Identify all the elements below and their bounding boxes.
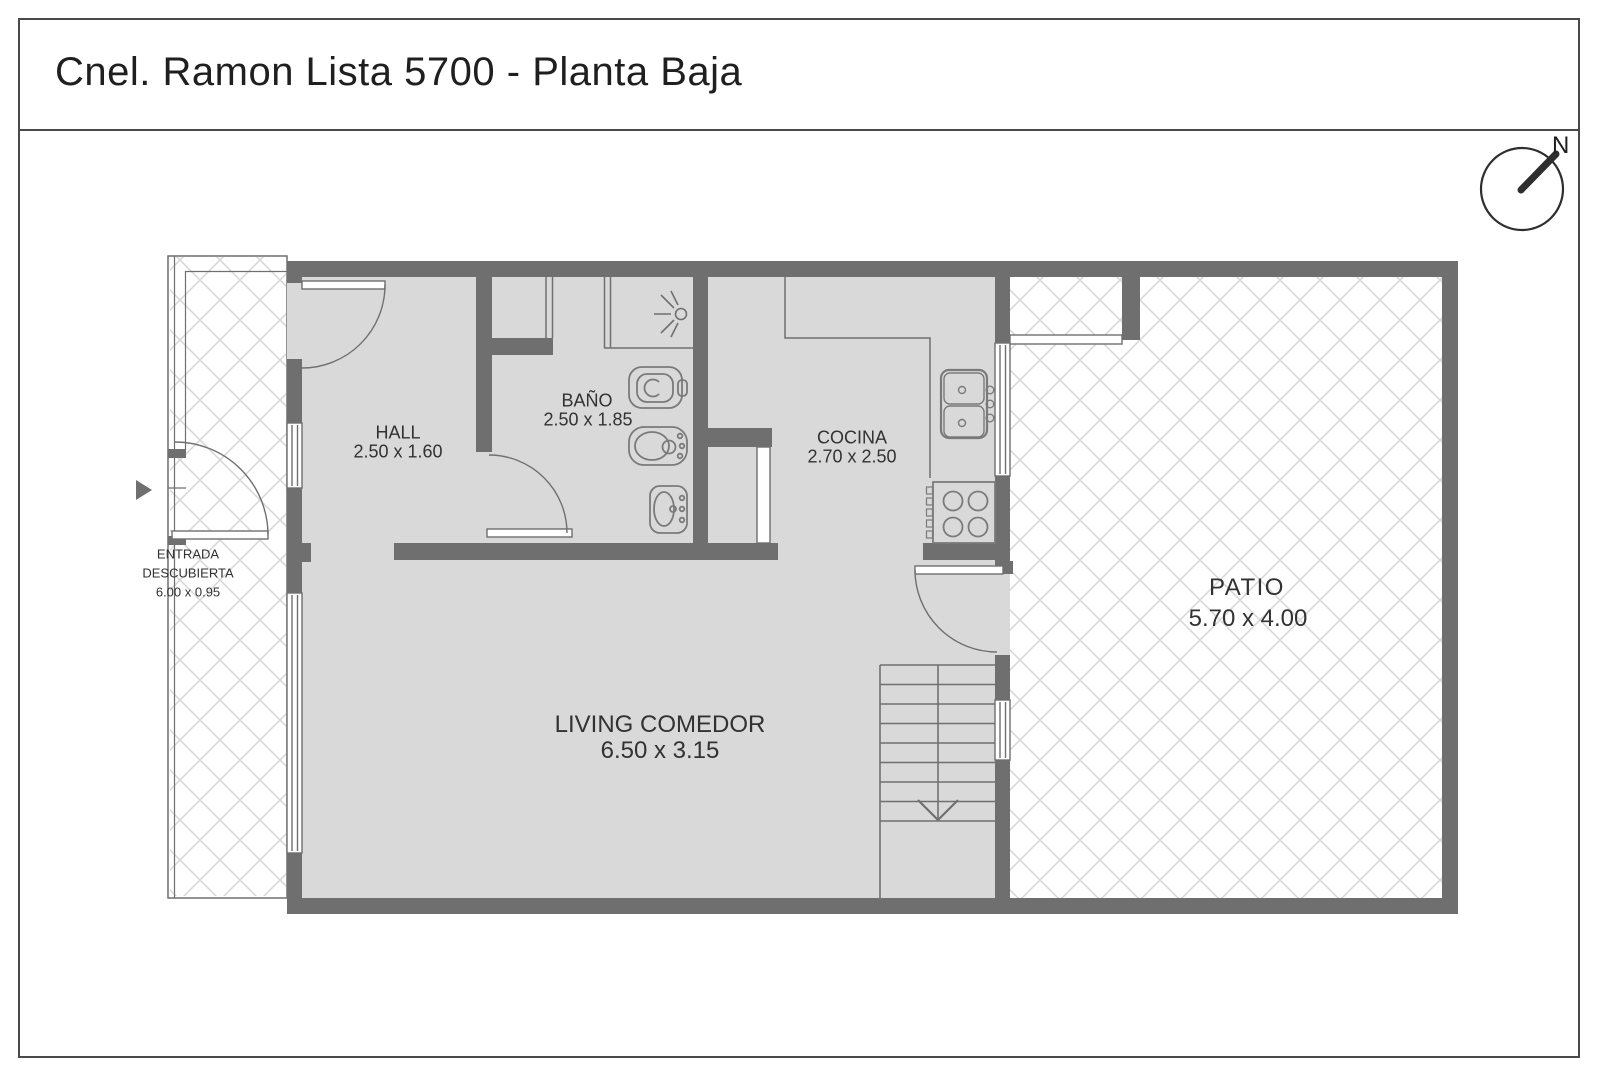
bathroom-label: BAÑO — [561, 391, 612, 412]
bathroom-dims: 2.50 x 1.85 — [543, 410, 632, 431]
patio-dims: 5.70 x 4.00 — [1189, 605, 1308, 633]
compass — [1481, 148, 1563, 230]
closet-wall-stub — [492, 338, 553, 355]
entrance-arrow-icon — [136, 480, 152, 500]
interior-floor — [302, 276, 995, 899]
patio-door-threshold — [995, 572, 1010, 655]
kitchen-dims: 2.70 x 2.50 — [807, 447, 896, 468]
wall-right — [1442, 261, 1458, 914]
kitchen-window — [995, 343, 1010, 476]
hall-window — [287, 423, 302, 488]
entrance-label: ENTRADA DESCUBIERTA 6.00 x 0.95 — [142, 545, 233, 602]
hall-dims: 2.50 x 1.60 — [353, 442, 442, 463]
entrance-label-line2: DESCUBIERTA — [142, 564, 233, 583]
wall-top — [287, 261, 1458, 277]
north-label: N — [1552, 132, 1569, 160]
entrance-label-line1: ENTRADA — [142, 545, 233, 564]
hall-label: HALL — [375, 423, 420, 444]
entrance-dims: 6.00 x 0.95 — [142, 583, 233, 602]
floor-plan-page: Cnel. Ramon Lista 5700 - Planta Baja — [0, 0, 1600, 1077]
kitchen-door-stub — [708, 428, 772, 447]
floor-plan-drawing — [0, 0, 1600, 1077]
wall-bottom — [287, 898, 1458, 914]
stairs-window — [995, 700, 1010, 760]
living-label: LIVING COMEDOR — [555, 711, 766, 739]
patio-rail — [1010, 335, 1122, 344]
hall-door-threshold — [287, 283, 302, 359]
living-window — [287, 593, 302, 853]
kitchen-door — [757, 447, 770, 543]
patio-label: PATIO — [1209, 574, 1285, 602]
living-dims: 6.50 x 3.15 — [601, 737, 720, 765]
patio-wall-stub — [1122, 276, 1140, 340]
kitchen-label: COCINA — [817, 428, 887, 449]
